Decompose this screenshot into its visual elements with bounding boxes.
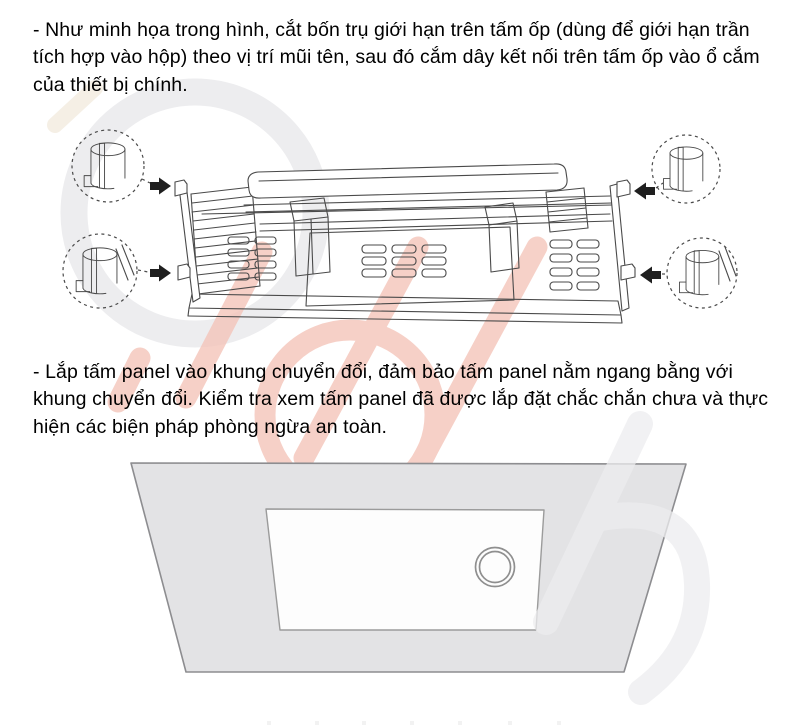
limit-post-tab-top-right — [617, 180, 630, 197]
post-callout-bottom-left — [63, 234, 137, 308]
limit-post-tab-top-left — [175, 180, 187, 196]
instruction-step-2: - Lắp tấm panel vào khung chuyển đổi, đả… — [33, 359, 773, 441]
center-vent-slots — [362, 245, 446, 277]
left-fin-grid — [191, 187, 260, 294]
panel-opening — [266, 509, 544, 630]
ceiling-unit-drawing — [175, 164, 635, 323]
arrow-icon-top-left — [150, 178, 171, 195]
limit-post-tab-bottom-left — [178, 264, 190, 280]
arrow-icon-bottom-left — [150, 265, 171, 282]
arrow-icon-bottom-right — [640, 267, 661, 284]
center-panel — [306, 227, 514, 306]
instruction-page: - Như minh họa trong hình, cắt bốn trụ g… — [0, 0, 790, 728]
arrow-icon-top-right — [634, 183, 655, 200]
post-callout-top-right — [652, 135, 720, 203]
instruction-step-1: - Như minh họa trong hình, cắt bốn trụ g… — [33, 17, 773, 99]
post-callout-top-left — [72, 130, 144, 202]
limit-post-tab-bottom-right — [621, 264, 635, 280]
top-rail — [248, 164, 567, 198]
right-component-box — [485, 203, 519, 272]
right-end-cap — [610, 184, 629, 311]
left-end-cap — [179, 184, 200, 302]
figure-installed-panel — [100, 450, 700, 680]
front-skirt — [188, 294, 622, 323]
figure-exploded-view — [50, 108, 750, 363]
left-vent-slots — [228, 237, 276, 280]
post-callout-bottom-right — [667, 238, 737, 308]
